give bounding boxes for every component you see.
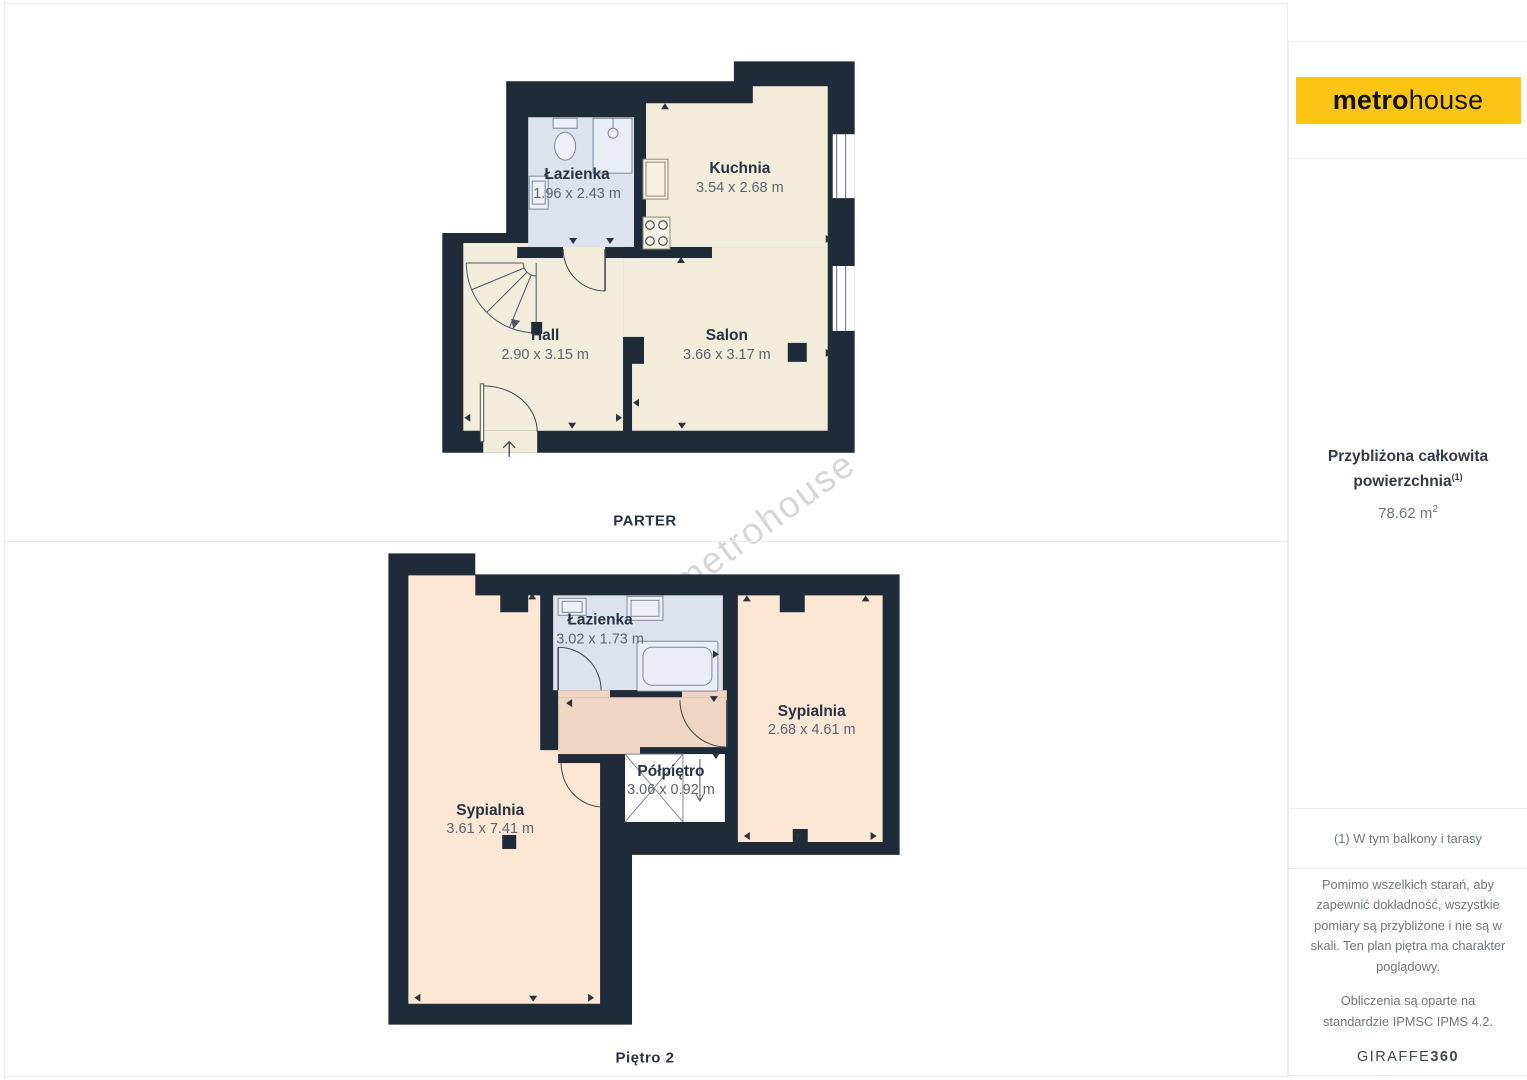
room-dims: 3.06 x 0.92 m (627, 782, 715, 798)
salon-column (788, 343, 807, 362)
floorplan-page: { "floors": { "parter": { "label": "PART… (0, 0, 1527, 1080)
room-dims: 3.54 x 2.68 m (696, 180, 784, 196)
window (833, 266, 855, 331)
info-sidebar: metrohouse Przybliżona całkowita powierz… (1288, 41, 1527, 1076)
balcony-footnote: (1) W tym balkony i tarasy (1334, 831, 1482, 846)
floor-label-pietro2: Piętro 2 (616, 1050, 675, 1067)
brand-name: GIRAFFE (1357, 1049, 1430, 1065)
fridge-fixture (643, 159, 668, 199)
area-title-footnote-marker: (1) (1452, 471, 1463, 481)
bedroom-column (502, 835, 516, 849)
area-title-line1: Przybliżona całkowita (1328, 448, 1488, 465)
logo-section: metrohouse (1289, 42, 1527, 159)
wall-stub (603, 754, 625, 768)
room-name: Sypialnia (778, 703, 846, 720)
doorway-gap (558, 690, 610, 697)
floor-label-parter: PARTER (613, 513, 676, 530)
scale-disclaimer: Pomimo wszelkich starań, aby zapewnić do… (1307, 875, 1509, 977)
kitchen-salon-opening (712, 247, 828, 258)
room-dims: 3.66 x 3.17 m (683, 347, 771, 363)
wall-segment (517, 247, 563, 258)
room-name: Salon (706, 327, 748, 344)
room-name: Kuchnia (709, 160, 770, 177)
toilet-fixture (553, 118, 577, 160)
room-dims: 2.90 x 3.15 m (501, 347, 589, 363)
area-title-line2: powierzchnia (1353, 473, 1451, 490)
parter-plan-panel: Łazienka 1.96 x 2.43 m Kuchnia 3.54 x 2.… (5, 4, 1287, 541)
window (833, 134, 855, 198)
shower-fixture (593, 118, 632, 173)
room-name: Łazienka (567, 611, 633, 628)
parter-floorplan: Łazienka 1.96 x 2.43 m Kuchnia 3.54 x 2.… (5, 4, 1287, 541)
stove-fixture (643, 217, 670, 249)
room-name: Hall (531, 327, 559, 344)
room-dims: 1.96 x 2.43 m (533, 186, 621, 202)
standard-disclaimer: Obliczenia są oparte na standardzie IPMS… (1307, 991, 1509, 1032)
disclaimer-section: Pomimo wszelkich starań, aby zapewnić do… (1289, 869, 1527, 1075)
room-dims: 2.68 x 4.61 m (768, 722, 856, 738)
floorplans-card: metrohouse (4, 3, 1288, 1077)
total-area-section: Przybliżona całkowita powierzchnia(1) 78… (1289, 159, 1527, 809)
landing-corridor-floor (558, 697, 727, 754)
closed-door-panel (558, 754, 603, 763)
metrohouse-logo: metrohouse (1296, 77, 1521, 124)
room-name: Półpiętro (637, 763, 704, 780)
brand-number: 360 (1430, 1049, 1459, 1065)
hall-salon-opening (623, 258, 644, 337)
room-dims: 3.02 x 1.73 m (556, 631, 644, 647)
area-value: 78.62 m2 (1378, 504, 1438, 522)
footnote-section: (1) W tym balkony i tarasy (1289, 809, 1527, 869)
pietro2-floorplan: Łazienka 3.02 x 1.73 m Sypialnia 2.68 x … (5, 542, 1287, 1079)
bathroom-doorway (563, 247, 605, 258)
pietro2-plan-panel: Łazienka 3.02 x 1.73 m Sypialnia 2.68 x … (5, 541, 1287, 1079)
room-dims: 3.61 x 7.41 m (446, 821, 534, 837)
area-value-sup: 2 (1432, 504, 1438, 515)
area-title: Przybliżona całkowita powierzchnia(1) (1328, 445, 1488, 493)
giraffe360-brand: GIRAFFE360 (1357, 1046, 1459, 1069)
bathtub-fixture (637, 641, 718, 691)
room-name: Łazienka (544, 166, 610, 183)
logo-text-light: house (1409, 85, 1484, 116)
area-value-number: 78.62 m (1378, 505, 1432, 522)
room-name: Sypialnia (456, 802, 524, 819)
logo-text-bold: metro (1333, 85, 1409, 116)
